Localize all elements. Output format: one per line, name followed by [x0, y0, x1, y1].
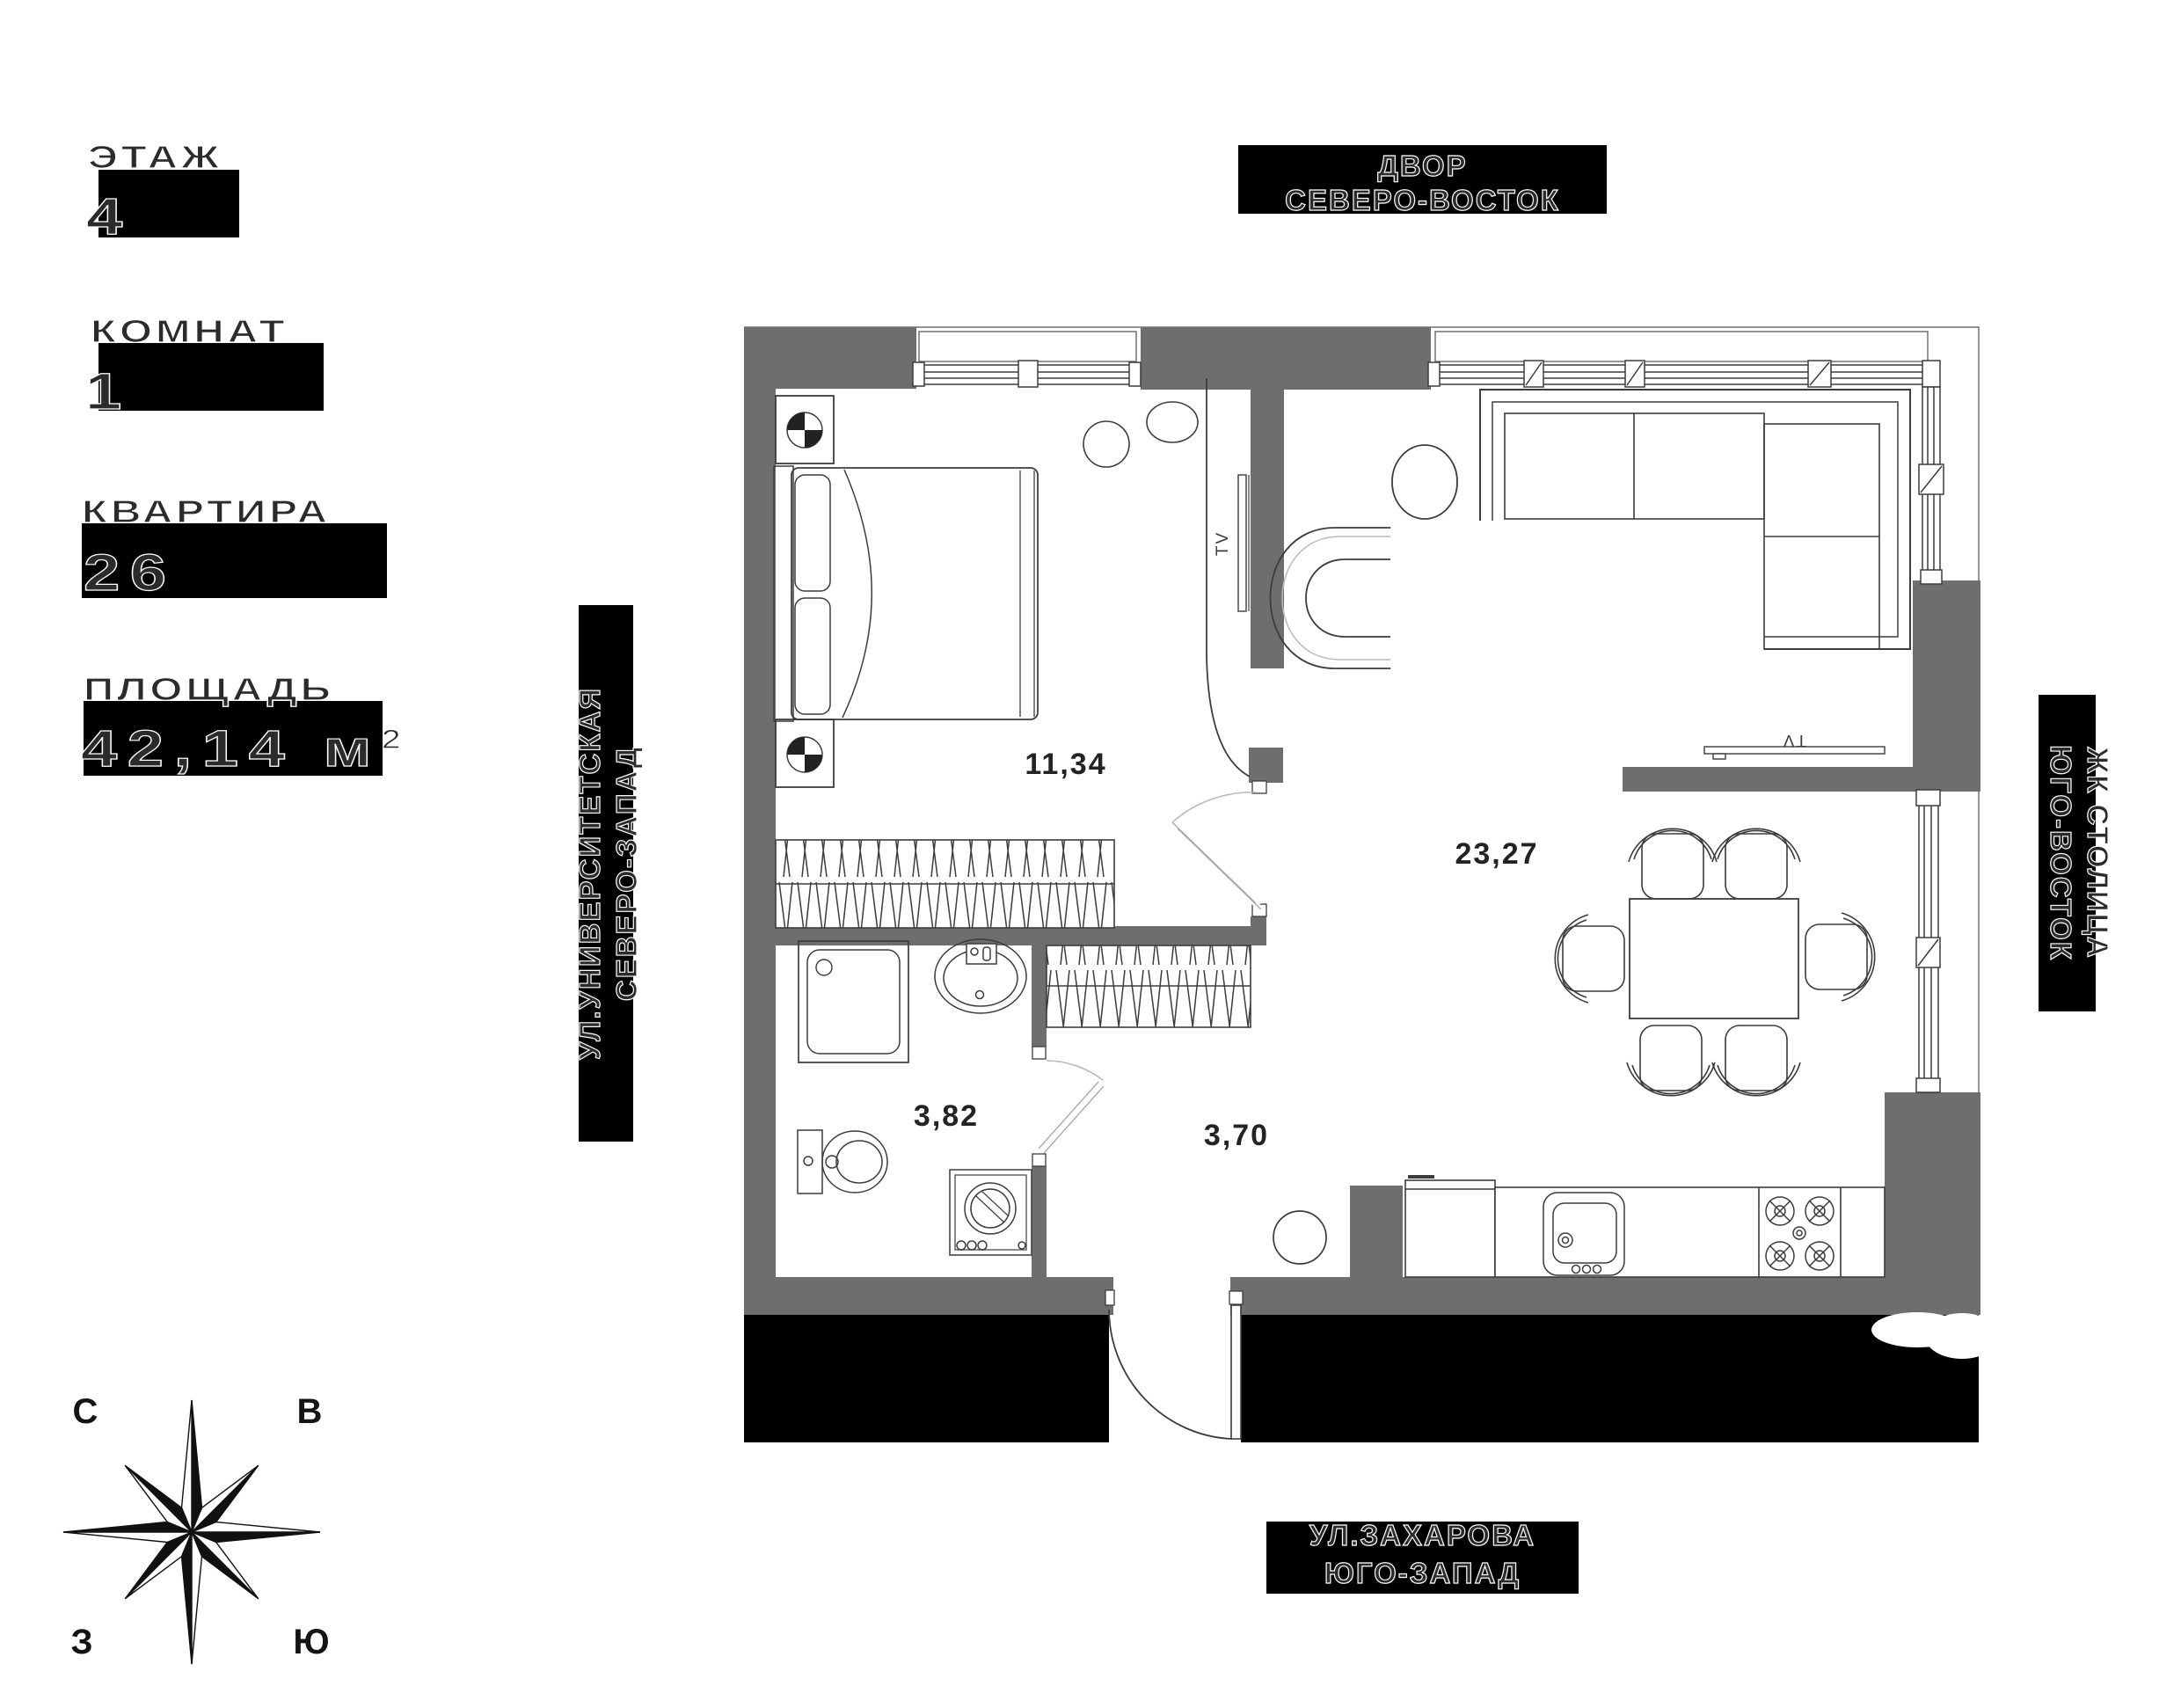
- bedroom-window: [913, 361, 1141, 387]
- bathroom-area-label: 3,82: [914, 1099, 979, 1133]
- walls: [744, 327, 1980, 1315]
- coffee-table: [1392, 445, 1457, 519]
- right-window-lower: [1916, 790, 1940, 1092]
- bathroom-door: [1032, 1047, 1104, 1166]
- living-tv-label: TV: [1782, 731, 1806, 749]
- living-room: [1271, 390, 1911, 759]
- nightstand-bottom: [776, 719, 834, 787]
- common-area-blocks: [744, 1312, 1999, 1442]
- entrance-door: [1105, 1290, 1243, 1439]
- floor-plan-svg: TV: [0, 0, 2181, 1708]
- compass-letter-se: Ю: [293, 1623, 329, 1661]
- bedroom-wardrobe: [776, 840, 1114, 928]
- bedroom-shelf: [1147, 402, 1198, 442]
- living-window: [1428, 361, 1940, 387]
- bedroom-stool: [1083, 421, 1129, 467]
- nightstand-top: [776, 396, 834, 463]
- right-window-upper: [1919, 387, 1944, 584]
- shower: [799, 941, 908, 1062]
- bedroom-tv-label: TV: [1214, 531, 1232, 556]
- armchair: [1271, 528, 1391, 668]
- compass-letter-nw: С: [73, 1392, 98, 1431]
- bathroom: [798, 939, 1032, 1255]
- bedroom-area-label: 11,34: [1025, 748, 1106, 781]
- common-block-right: [1241, 1315, 1979, 1442]
- bath-sink: [935, 939, 1026, 1013]
- dining-set: [1555, 828, 1874, 1095]
- compass-rose: [63, 1400, 320, 1664]
- bed: [774, 466, 1038, 721]
- toilet: [798, 1130, 887, 1193]
- compass-letter-ne: В: [297, 1392, 323, 1431]
- bedroom-tv-unit: [1207, 378, 1250, 777]
- kitchen: [1405, 1175, 1885, 1277]
- bedroom: [774, 378, 1250, 928]
- dining-chairs: [1555, 828, 1874, 1095]
- dining-table: [1630, 899, 1798, 1018]
- bedroom-door: [1172, 781, 1266, 916]
- plan-boundary: [744, 327, 1979, 1315]
- hall: [1047, 945, 1326, 1264]
- hall-wardrobe: [1047, 945, 1251, 1027]
- compass-letter-sw: З: [70, 1623, 92, 1661]
- hall-stool: [1273, 1211, 1326, 1264]
- fridge: [1405, 1175, 1495, 1277]
- hall-area-label: 3,70: [1204, 1119, 1269, 1152]
- living-area-label: 23,27: [1455, 837, 1538, 871]
- corner-sofa: [1480, 390, 1910, 649]
- floor-plan-page: ЭТАЖ 4 КОМНАТ 1 КВАРТИРА 26 ПЛОЩАДЬ 42,1…: [0, 0, 2181, 1708]
- common-block-left: [744, 1315, 1109, 1442]
- washing-machine: [950, 1170, 1032, 1255]
